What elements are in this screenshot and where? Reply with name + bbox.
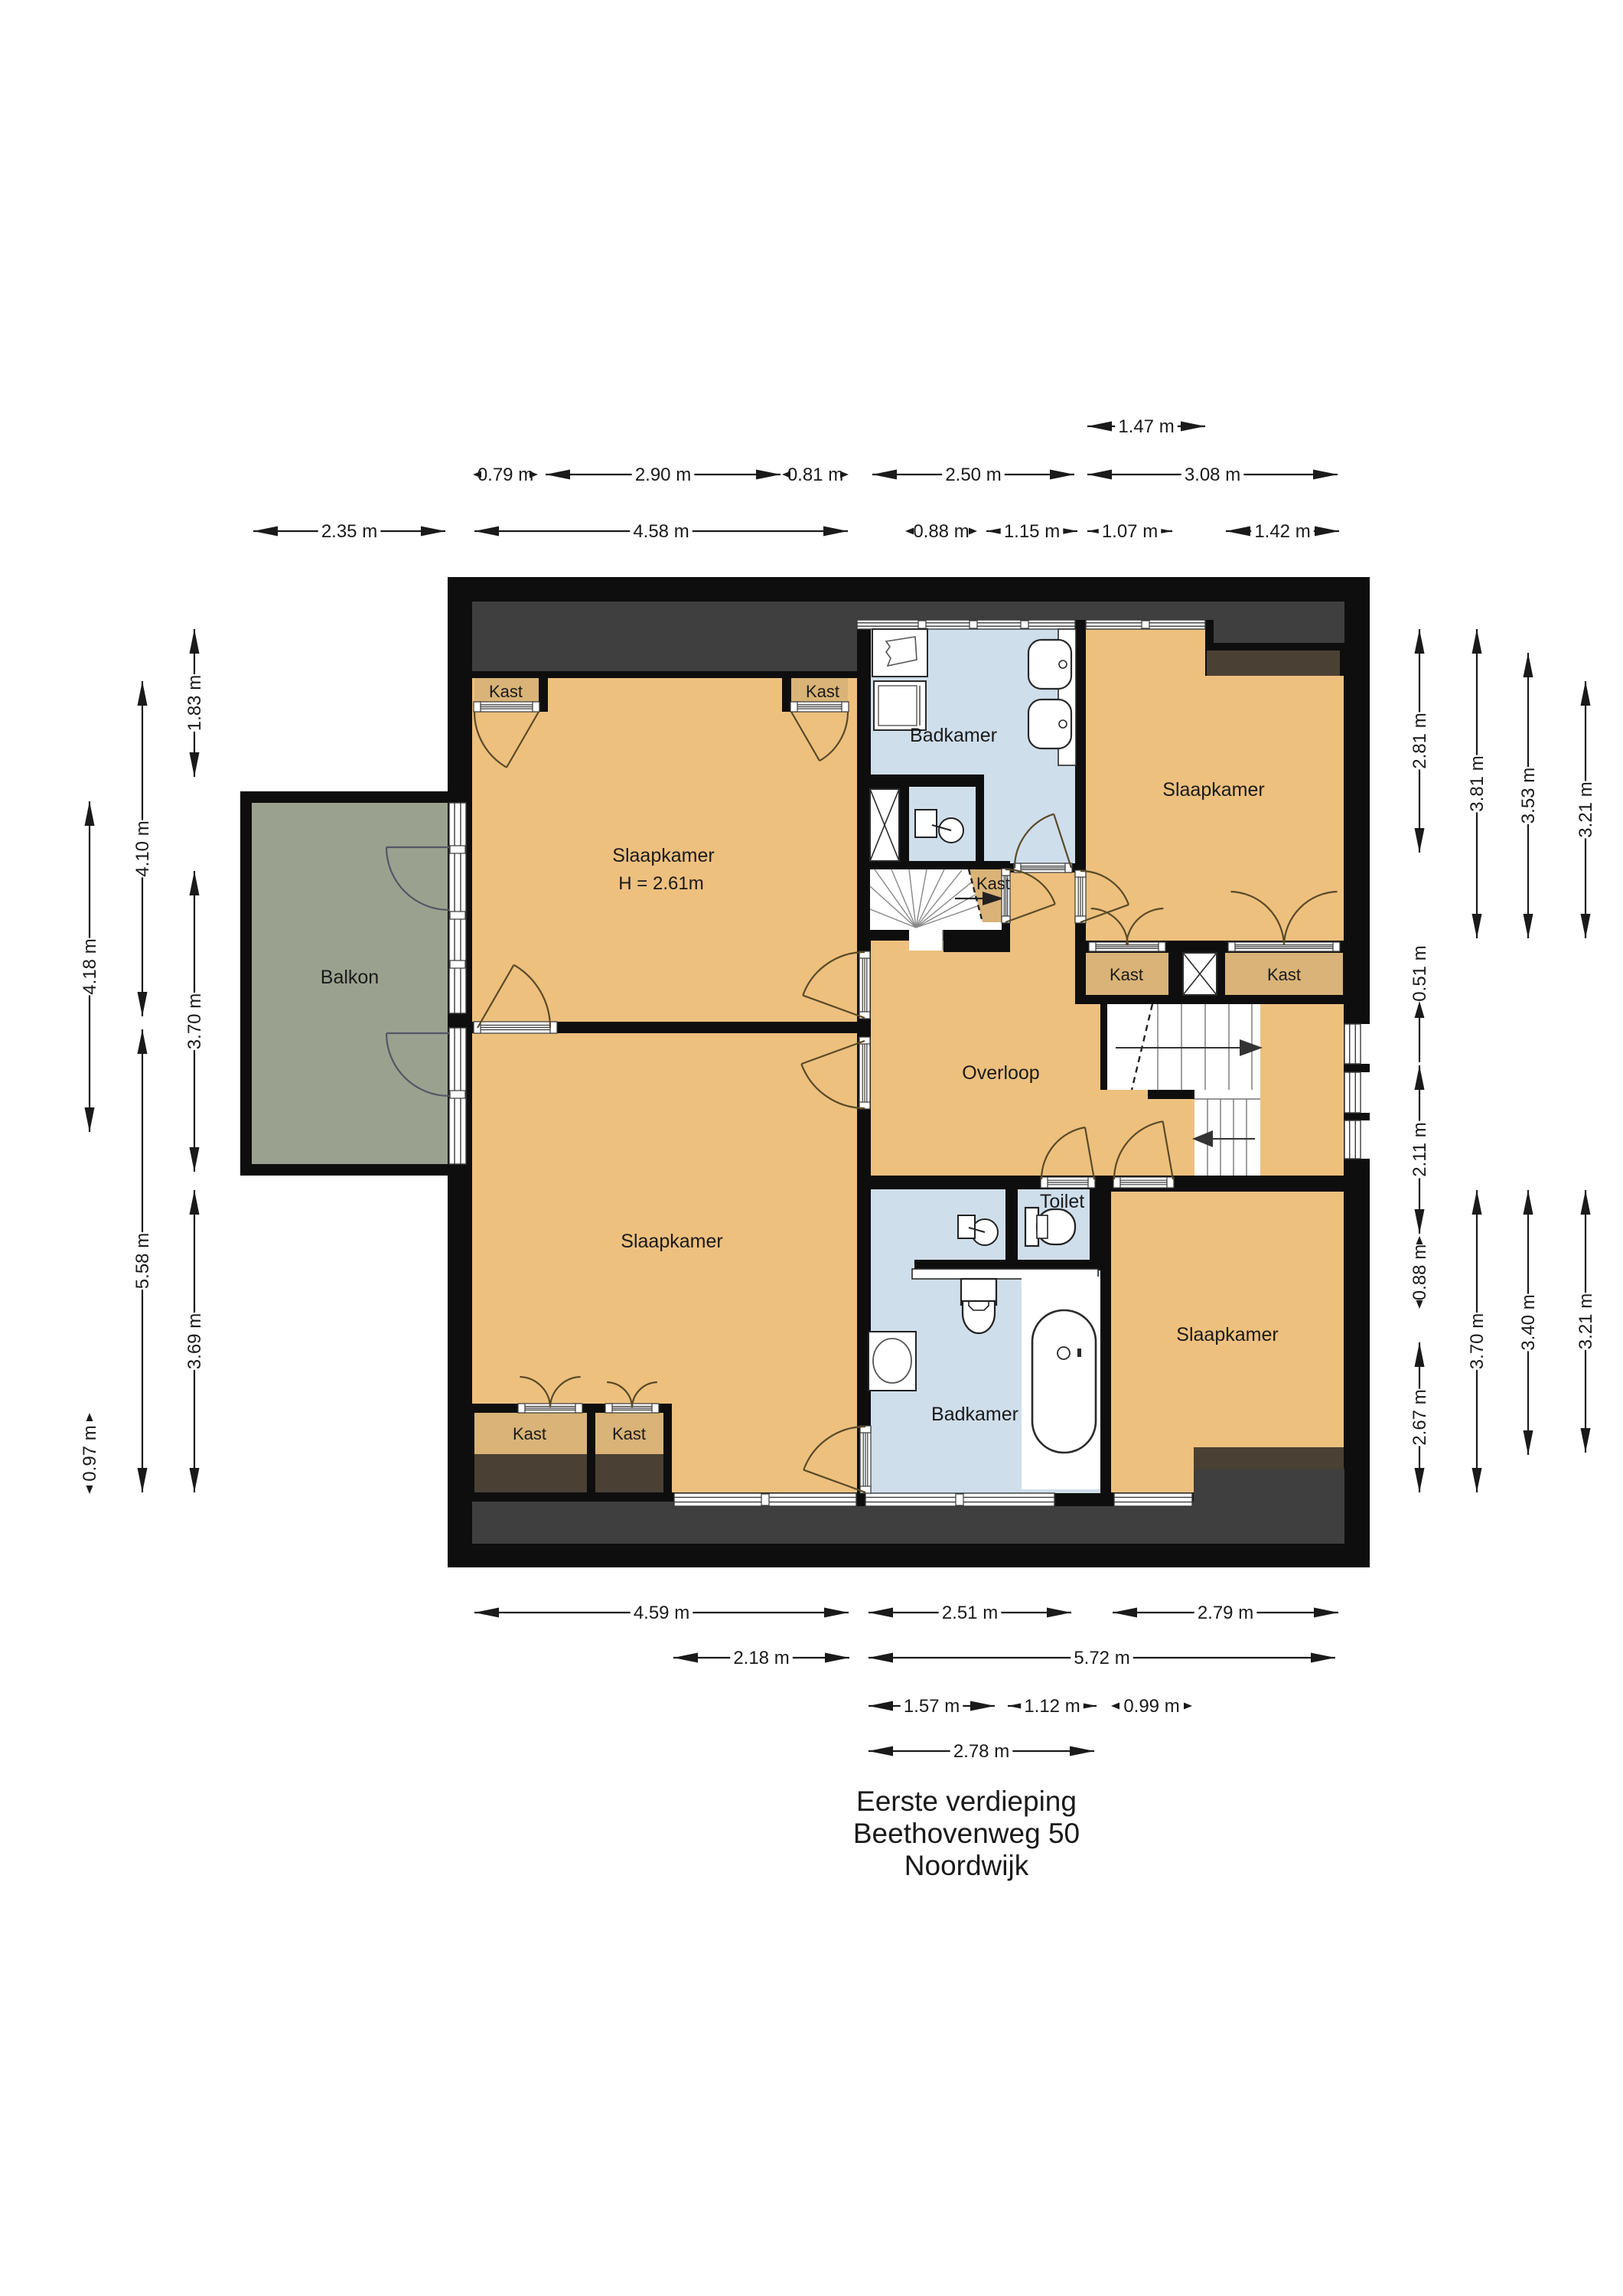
svg-text:1.83 m: 1.83 m xyxy=(184,675,205,731)
svg-text:4.18 m: 4.18 m xyxy=(80,938,100,994)
svg-text:Toilet: Toilet xyxy=(1040,1191,1084,1212)
svg-text:H = 2.61m: H = 2.61m xyxy=(618,873,703,894)
svg-text:2.81 m: 2.81 m xyxy=(1410,713,1430,768)
svg-text:4.59 m: 4.59 m xyxy=(634,1603,689,1623)
svg-text:2.79 m: 2.79 m xyxy=(1198,1603,1253,1623)
svg-text:1.57 m: 1.57 m xyxy=(904,1696,960,1717)
svg-text:1.15 m: 1.15 m xyxy=(1004,521,1060,542)
svg-text:0.79 m: 0.79 m xyxy=(477,465,533,485)
svg-text:Beethovenweg 50: Beethovenweg 50 xyxy=(853,1818,1080,1849)
svg-text:3.40 m: 3.40 m xyxy=(1518,1294,1539,1350)
svg-text:Balkon: Balkon xyxy=(321,967,379,988)
svg-text:Kast: Kast xyxy=(612,1424,646,1443)
svg-text:0.88 m: 0.88 m xyxy=(1410,1244,1430,1300)
svg-text:5.72 m: 5.72 m xyxy=(1074,1648,1129,1668)
svg-text:2.67 m: 2.67 m xyxy=(1410,1389,1430,1445)
svg-text:2.50 m: 2.50 m xyxy=(945,465,1001,485)
svg-text:2.18 m: 2.18 m xyxy=(733,1648,789,1668)
svg-text:0.88 m: 0.88 m xyxy=(913,521,969,542)
svg-text:1.12 m: 1.12 m xyxy=(1024,1696,1080,1717)
svg-text:Noordwijk: Noordwijk xyxy=(904,1850,1029,1881)
svg-text:1.42 m: 1.42 m xyxy=(1254,521,1310,542)
svg-text:0.51 m: 0.51 m xyxy=(1410,945,1430,1001)
svg-text:3.69 m: 3.69 m xyxy=(184,1313,205,1369)
svg-text:2.90 m: 2.90 m xyxy=(635,465,691,485)
svg-text:0.81 m: 0.81 m xyxy=(787,465,843,485)
svg-text:Eerste verdieping: Eerste verdieping xyxy=(856,1786,1077,1817)
svg-text:Kast: Kast xyxy=(489,682,523,701)
svg-text:3.21 m: 3.21 m xyxy=(1576,1293,1596,1349)
svg-text:3.70 m: 3.70 m xyxy=(184,993,205,1049)
svg-text:Slaapkamer: Slaapkamer xyxy=(1176,1324,1278,1345)
svg-text:2.51 m: 2.51 m xyxy=(942,1603,998,1623)
svg-text:Kast: Kast xyxy=(1110,965,1143,984)
svg-text:Badkamer: Badkamer xyxy=(910,725,997,746)
svg-text:3.21 m: 3.21 m xyxy=(1576,781,1596,837)
svg-text:3.81 m: 3.81 m xyxy=(1467,755,1488,811)
svg-text:2.35 m: 2.35 m xyxy=(321,521,377,542)
svg-text:2.78 m: 2.78 m xyxy=(953,1741,1009,1762)
svg-text:3.08 m: 3.08 m xyxy=(1185,465,1240,485)
svg-text:2.11 m: 2.11 m xyxy=(1410,1122,1430,1177)
svg-text:Slaapkamer: Slaapkamer xyxy=(1162,779,1264,801)
svg-text:3.53 m: 3.53 m xyxy=(1518,768,1539,823)
svg-text:5.58 m: 5.58 m xyxy=(132,1233,153,1289)
svg-text:1.07 m: 1.07 m xyxy=(1102,521,1158,542)
svg-text:Slaapkamer: Slaapkamer xyxy=(612,845,714,866)
svg-text:4.58 m: 4.58 m xyxy=(633,521,689,542)
svg-text:Slaapkamer: Slaapkamer xyxy=(621,1231,722,1252)
svg-text:Kast: Kast xyxy=(513,1424,546,1443)
svg-text:Overloop: Overloop xyxy=(962,1062,1039,1084)
svg-text:0.97 m: 0.97 m xyxy=(80,1425,100,1481)
svg-text:Kast: Kast xyxy=(806,682,839,701)
svg-text:1.47 m: 1.47 m xyxy=(1118,416,1174,437)
svg-text:Badkamer: Badkamer xyxy=(931,1404,1018,1425)
svg-text:Kast: Kast xyxy=(976,874,1010,893)
svg-text:3.70 m: 3.70 m xyxy=(1467,1313,1488,1369)
svg-text:0.99 m: 0.99 m xyxy=(1123,1696,1179,1717)
svg-text:Kast: Kast xyxy=(1267,965,1301,984)
svg-text:4.10 m: 4.10 m xyxy=(132,820,153,876)
